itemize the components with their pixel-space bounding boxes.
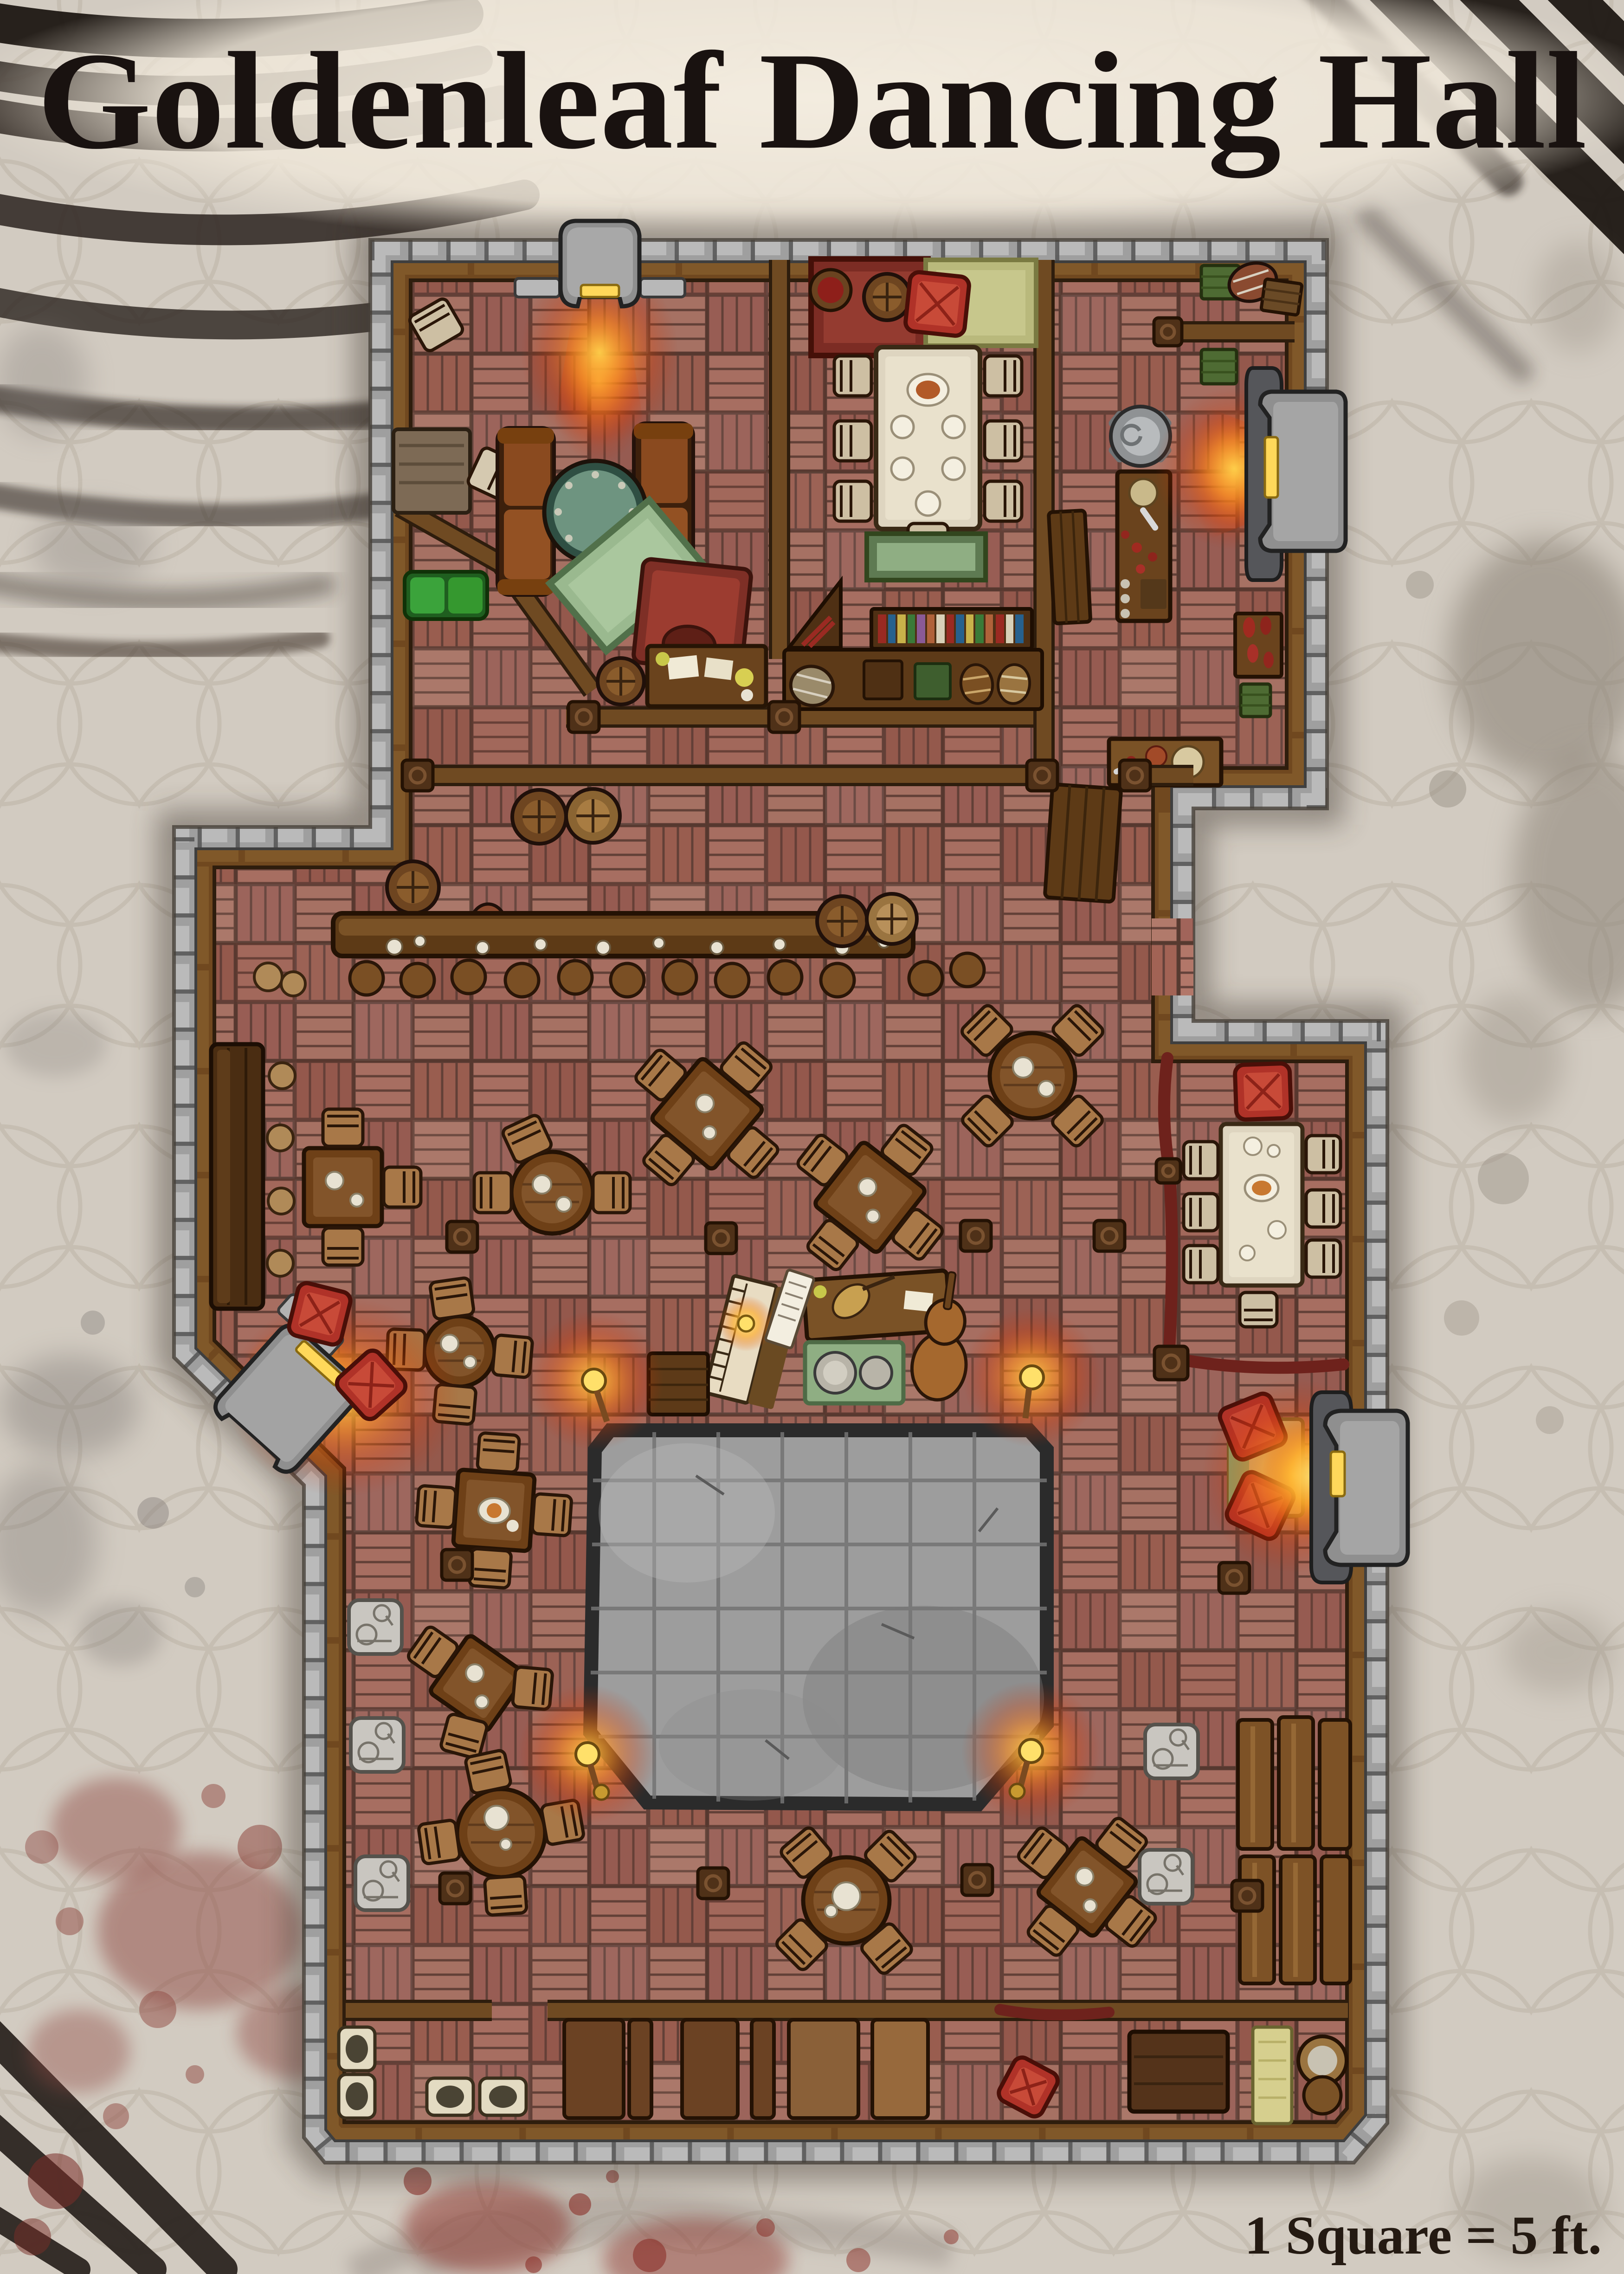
svg-text:Goldenleaf Dancing Hall: Goldenleaf Dancing Hall [37,24,1587,180]
svg-text:1 Square = 5 ft.: 1 Square = 5 ft. [1244,2205,1602,2266]
